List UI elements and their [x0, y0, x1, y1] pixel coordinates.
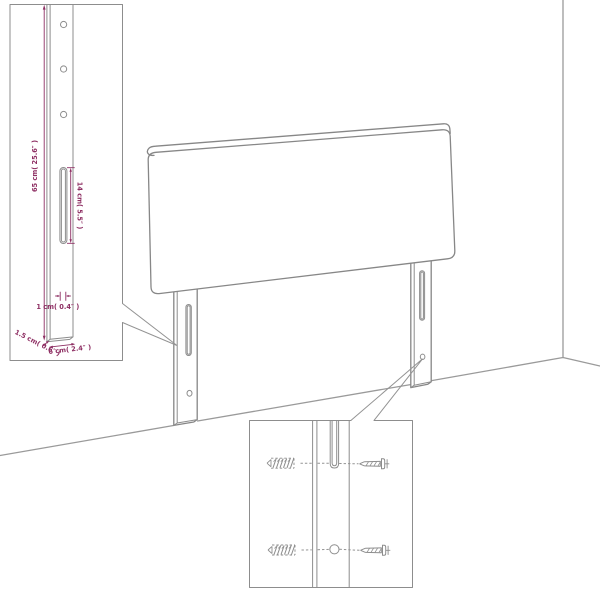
mounting-detail-inset: [250, 421, 413, 588]
dim-slot-length-label: 14 cm( 5.5″ ): [76, 182, 84, 230]
right-leg: [411, 260, 431, 388]
headboard-panel: [147, 124, 454, 294]
left-leg: [174, 288, 197, 426]
floor-line-right: [563, 358, 600, 367]
leg-detail-inset: 65 cm( 25.6″ ) 14 cm( 5.5″ ) 1 cm( 0.4″ …: [10, 5, 123, 361]
panel-front-face: [148, 130, 455, 294]
headboard-dimension-diagram: 65 cm( 25.6″ ) 14 cm( 5.5″ ) 1 cm( 0.4″ …: [0, 0, 600, 600]
headboard-drawing: [123, 124, 455, 426]
dim-slot-width-label: 1 cm( 0.4″ ): [36, 303, 79, 311]
mounting-inset-background: [250, 421, 412, 587]
leader-lines-to-mounting-detail: [351, 359, 423, 421]
dim-height-label: 65 cm( 25.6″ ): [31, 140, 39, 192]
leader-lines-to-leg-detail: [123, 304, 178, 346]
